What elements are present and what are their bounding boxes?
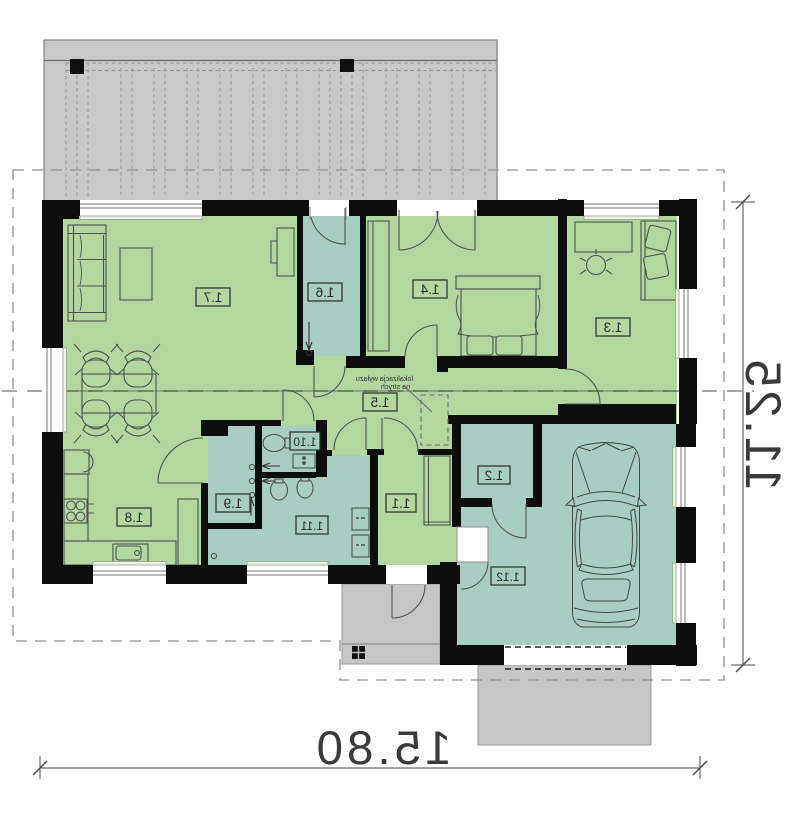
svg-text:1.12: 1.12 [496,570,520,584]
svg-text:1.8: 1.8 [125,510,144,525]
svg-text:15.80: 15.80 [313,722,452,775]
svg-text:1.1: 1.1 [392,496,411,511]
svg-text:1.3: 1.3 [604,320,623,335]
svg-text:na strych: na strych [381,382,410,391]
svg-text:11.25: 11.25 [735,357,791,491]
svg-text:1.4: 1.4 [420,282,439,297]
svg-text:1.9: 1.9 [224,496,243,511]
svg-text:1.5: 1.5 [371,395,390,410]
svg-text:1.6: 1.6 [316,285,335,300]
svg-text:1.7: 1.7 [204,290,223,305]
svg-text:1.2: 1.2 [485,468,504,483]
svg-text:1.11: 1.11 [300,519,323,533]
svg-text:1.10: 1.10 [293,435,317,449]
